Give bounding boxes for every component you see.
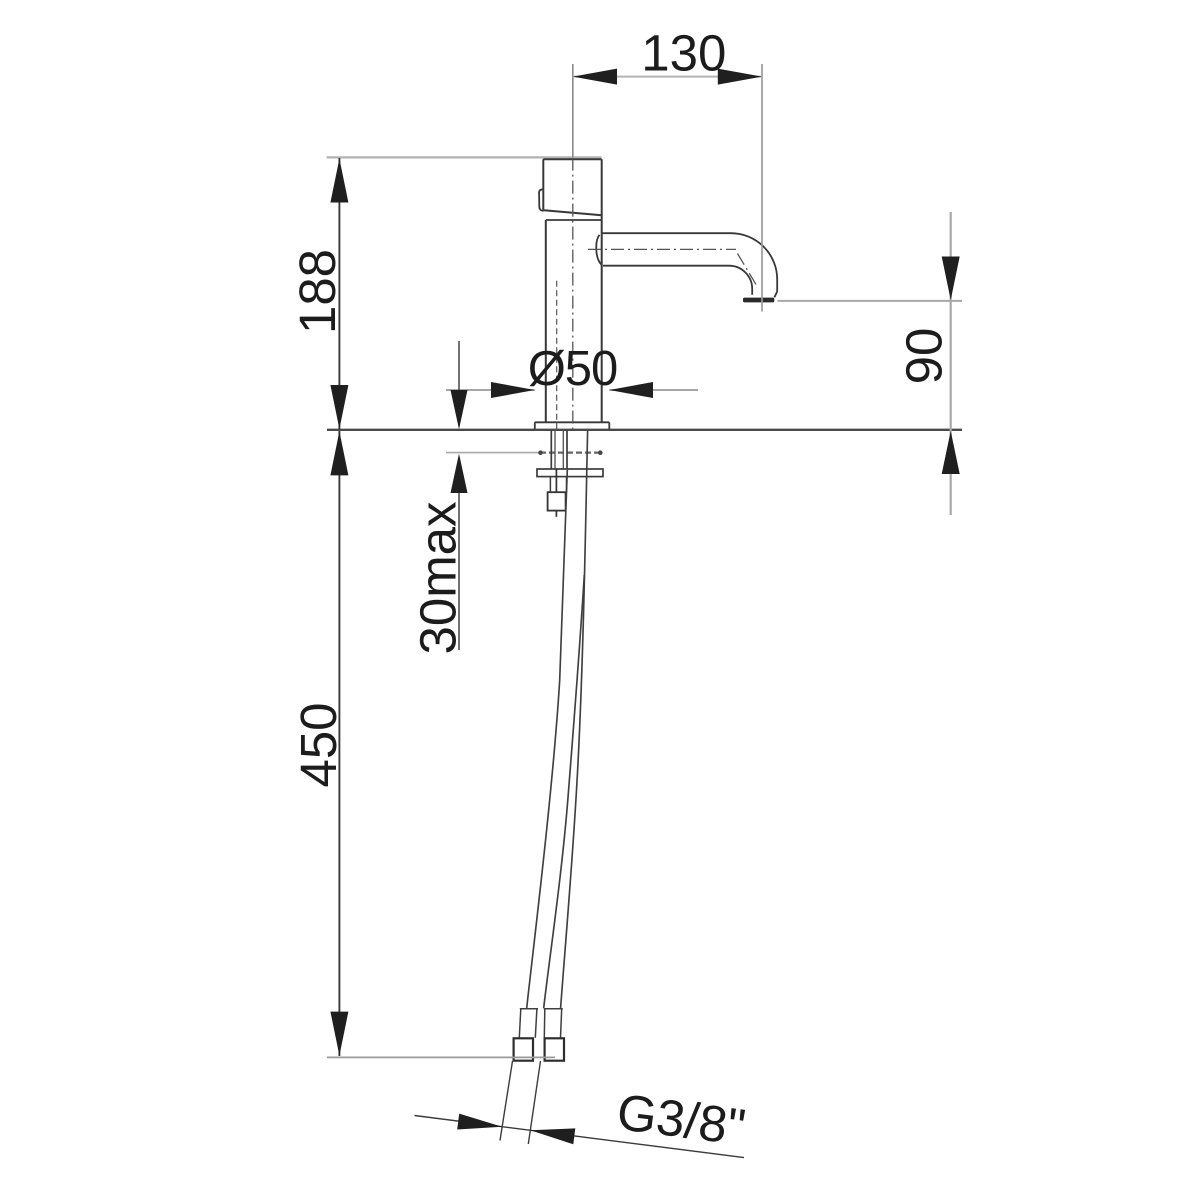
- svg-text:90: 90: [895, 328, 952, 385]
- svg-text:30max: 30max: [409, 501, 466, 654]
- svg-text:G3/8": G3/8": [614, 1083, 749, 1156]
- svg-text:450: 450: [290, 702, 347, 787]
- svg-text:188: 188: [289, 249, 346, 334]
- svg-text:130: 130: [641, 24, 726, 81]
- svg-text:Ø50: Ø50: [528, 342, 618, 396]
